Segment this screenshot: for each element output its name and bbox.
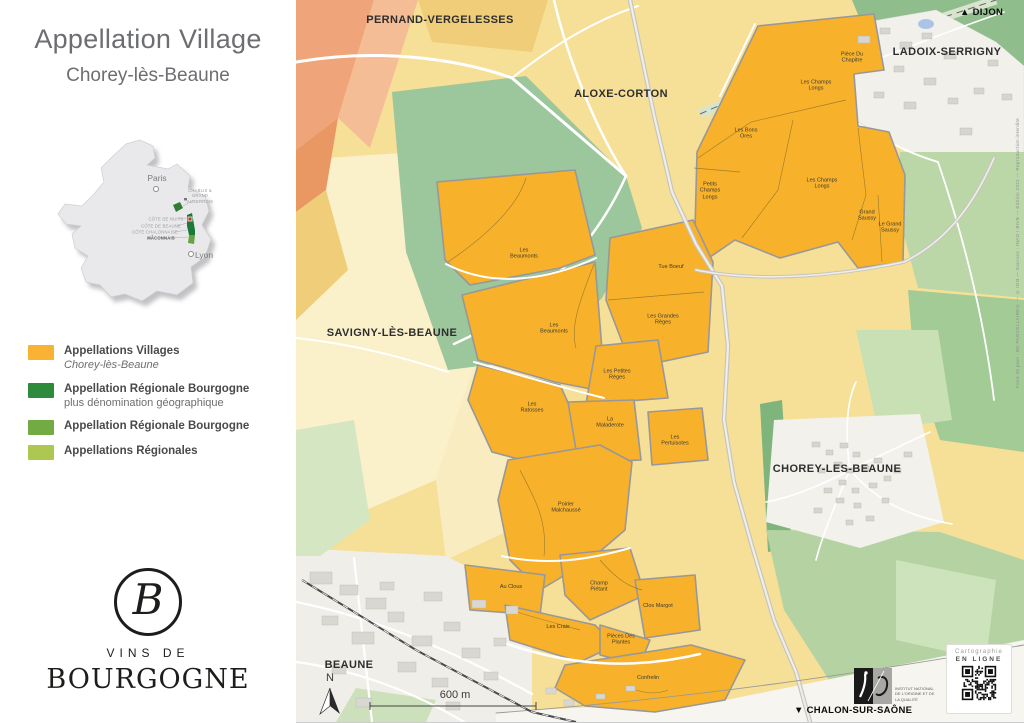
parcel-label: Clos Margot [643, 603, 673, 609]
parcel-label: Grand Saussy [858, 210, 876, 223]
france-region-label: MÂCONNAIS [147, 235, 175, 240]
place-label-chorey-les-beaune: CHOREY-LES-BEAUNE [773, 463, 901, 475]
parcel-label: Les Ratosses [521, 402, 544, 415]
legend-label: Appellation Régionale Bourgogne [64, 419, 249, 433]
parcel-label: Les Bons Ores [735, 128, 758, 141]
legend-text: Appellations VillagesChorey-lès-Beaune [64, 344, 179, 373]
parcel-label: Les Beaumonts [540, 323, 568, 336]
legend-label: Appellations Villages [64, 344, 179, 358]
france-city-dot [188, 251, 194, 257]
scale-bar-label: 600 m [440, 689, 471, 701]
france-city-label: Paris [147, 173, 166, 183]
france-city-label: Lyon [195, 250, 213, 260]
inao-caption: Institut National de l'Origine et de la … [895, 686, 934, 702]
inao-logo [854, 668, 892, 704]
legend-text: Appellations Régionales [64, 444, 198, 458]
north-label: N [326, 672, 334, 684]
france-region-label: CHABLIS & GRAND AUXERROIS [179, 188, 221, 204]
parcel-label: Les Champs Longs [801, 80, 832, 93]
legend-label: Appellation Régionale Bourgogne [64, 382, 249, 396]
poster: Appellation Village Chorey-lès-Beaune Pa… [0, 0, 1024, 723]
sidebar: Appellation Village Chorey-lès-Beaune Pa… [0, 0, 296, 723]
parcel-label: Petits Champs Longs [700, 182, 720, 201]
map-panel: PERNAND-VERGELESSESALOXE-CORTONLADOIX-SE… [296, 0, 1024, 723]
legend-item: Appellations VillagesChorey-lès-Beaune [28, 344, 284, 373]
legend-label: Appellations Régionales [64, 444, 198, 458]
cartouche-title: Cartographie [947, 649, 1011, 655]
chorey-highlight-mark [188, 217, 192, 221]
legend-swatch [28, 445, 54, 460]
parcel-label: Au Clous [500, 584, 522, 590]
logo-monogram-circle: B [114, 568, 182, 636]
legend-swatch [28, 345, 54, 360]
parcel-label: Les Grandes Règes [647, 314, 679, 327]
parcel-label: La Maladerote [596, 417, 624, 430]
parcel-label: Confrelin [637, 675, 659, 681]
legend-item: Appellations Régionales [28, 444, 284, 460]
page-title: Appellation Village [0, 24, 296, 55]
inao-logo-block: Institut National de l'Origine et de la … [854, 668, 934, 704]
legend-swatch [28, 383, 54, 398]
parcel-label: Pièce Du Chapitre [841, 52, 863, 65]
logo-line2: BOURGOGNE [0, 664, 296, 695]
parcel-label: Les Beaumonts [510, 248, 538, 261]
parcel-label: Pièces Des Plantes [607, 634, 635, 647]
parcel-label: Tue Boeuf [658, 264, 683, 270]
place-label-savigny-l-s-beaune: SAVIGNY-LÈS-BEAUNE [327, 327, 457, 339]
direction-marker-dijon: ▲ DIJON [960, 7, 1003, 18]
parcel-label: Les Champs Longs [807, 178, 838, 191]
legend-sublabel: plus dénomination géographique [64, 396, 249, 410]
parcel-label: Le Grand Saussy [879, 222, 902, 235]
legend-text: Appellation Régionale Bourgogne [64, 419, 249, 433]
place-label-aloxe-corton: ALOXE-CORTON [574, 88, 668, 100]
brand-logo: B VINS DE BOURGOGNE [0, 568, 296, 695]
qr-code [961, 665, 997, 701]
legend: Appellations VillagesChorey-lès-BeauneAp… [28, 344, 284, 469]
france-region-label: CÔTE DE BEAUNE [141, 223, 181, 228]
parcel-label: Les Pertuisotes [661, 435, 689, 448]
map-artwork [296, 0, 1024, 723]
parcel-label: Les Crais [546, 624, 569, 630]
parcel-label: Poirier Malchaussé [551, 502, 580, 515]
place-label-ladoix-serrigny: LADOIX-SERRIGNY [893, 46, 1002, 58]
france-locator-map: ParisLyonCHABLIS & GRAND AUXERROISCÔTE D… [56, 136, 242, 336]
legend-swatch [28, 420, 54, 435]
copyright-vertical-text: Fond de plan : BD PARCELLAIRE® — © IGN —… [1015, 118, 1020, 388]
legend-sublabel: Chorey-lès-Beaune [64, 358, 179, 372]
legend-item: Appellation Régionale Bourgogne [28, 419, 284, 435]
cartouche-subtitle: EN LIGNE [947, 656, 1011, 663]
maconnais-mark [188, 235, 195, 244]
page-subtitle: Chorey-lès-Beaune [0, 65, 296, 87]
logo-monogram: B [133, 579, 164, 621]
legend-text: Appellation Régionale Bourgogneplus déno… [64, 382, 249, 411]
direction-marker-chalon-sur-sa-ne: ▼ CHALON-SUR-SAÔNE [794, 705, 912, 716]
france-city-dot [153, 186, 159, 192]
parcel-label: Les Petites Règes [603, 369, 630, 382]
france-region-label: CÔTE CHALONNAISE [132, 229, 178, 234]
online-cartography-cartouche: Cartographie EN LIGNE [946, 644, 1012, 714]
france-region-label: CÔTE DE NUITS [149, 216, 184, 221]
logo-line1: VINS DE [0, 646, 296, 660]
legend-item: Appellation Régionale Bourgogneplus déno… [28, 382, 284, 411]
parcel-label: Champ Piétant [590, 581, 608, 594]
place-label-beaune: BEAUNE [325, 659, 374, 671]
place-label-pernand-vergelesses: PERNAND-VERGELESSES [366, 14, 514, 26]
